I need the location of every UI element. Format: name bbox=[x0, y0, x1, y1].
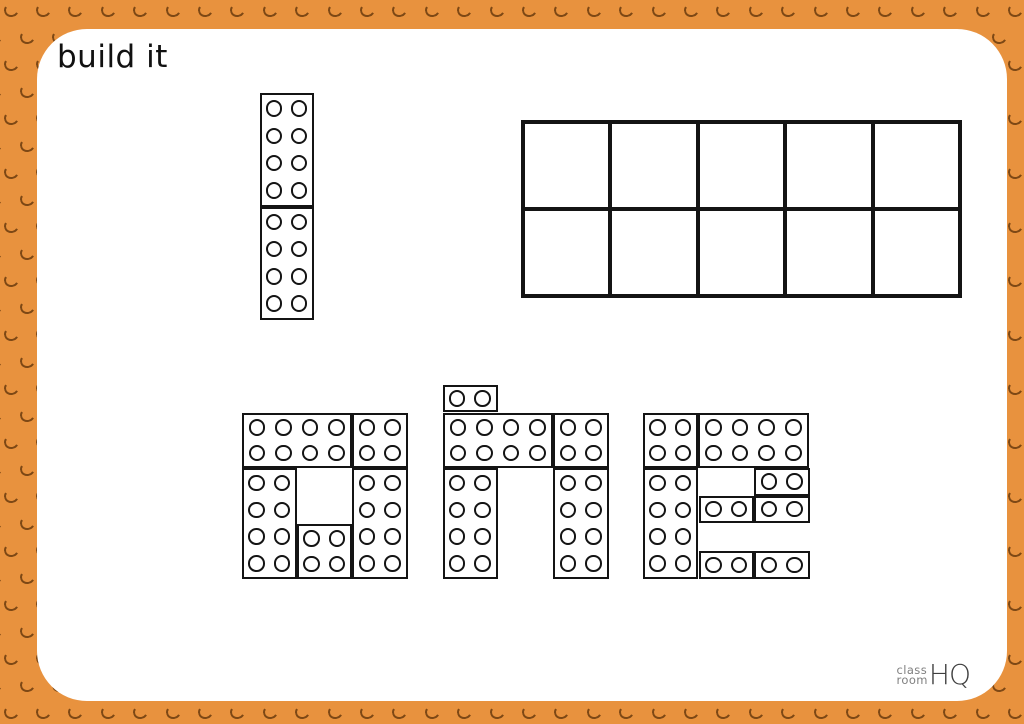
brick-stud-icon bbox=[675, 419, 692, 436]
baseplate-stud-icon bbox=[974, 1, 992, 18]
brick-stud-icon bbox=[302, 445, 319, 462]
lego-brick bbox=[242, 413, 353, 468]
brick-stud-icon bbox=[303, 530, 320, 547]
baseplate-stud-icon bbox=[164, 1, 182, 18]
lego-brick bbox=[260, 93, 315, 207]
baseplate-stud-icon bbox=[942, 1, 960, 18]
baseplate-stud-icon bbox=[358, 1, 376, 18]
brick-stud-icon bbox=[560, 475, 577, 492]
brick-stud-icon bbox=[275, 445, 292, 462]
baseplate-stud-icon bbox=[0, 82, 4, 99]
brick-stud-icon bbox=[359, 502, 376, 519]
brick-stud-icon bbox=[705, 501, 722, 518]
brick-stud-icon bbox=[248, 528, 265, 545]
baseplate-stud-icon bbox=[2, 163, 20, 180]
brick-stud-icon bbox=[359, 445, 376, 462]
brick-stud-icon bbox=[474, 555, 491, 572]
lego-brick bbox=[443, 468, 498, 579]
brick-stud-icon bbox=[450, 445, 467, 462]
lego-brick bbox=[443, 385, 498, 413]
ten-frame-cell bbox=[873, 209, 960, 296]
brick-stud-icon bbox=[560, 502, 577, 519]
baseplate-stud-icon bbox=[909, 703, 927, 720]
brick-stud-icon bbox=[649, 502, 666, 519]
brick-stud-icon bbox=[359, 555, 376, 572]
baseplate-stud-icon bbox=[18, 676, 36, 693]
baseplate-stud-icon bbox=[261, 1, 279, 18]
baseplate-stud-icon bbox=[1006, 379, 1024, 396]
baseplate-stud-icon bbox=[0, 514, 4, 531]
brick-stud-icon bbox=[705, 557, 722, 574]
lego-brick bbox=[698, 413, 809, 468]
baseplate-stud-icon bbox=[67, 703, 85, 720]
baseplate-stud-icon bbox=[0, 460, 4, 477]
brick-stud-icon bbox=[329, 556, 346, 573]
baseplate-stud-icon bbox=[520, 703, 538, 720]
logo-hq-mark: HQ bbox=[929, 661, 970, 689]
logo-word-bottom: room bbox=[897, 675, 928, 685]
brick-stud-icon bbox=[449, 528, 466, 545]
baseplate-stud-icon bbox=[1006, 433, 1024, 450]
baseplate-stud-icon bbox=[2, 649, 20, 666]
lego-brick bbox=[643, 413, 698, 468]
baseplate-stud-icon bbox=[1006, 325, 1024, 342]
baseplate-stud-icon bbox=[132, 703, 150, 720]
baseplate-stud-icon bbox=[358, 703, 376, 720]
brick-stud-icon bbox=[560, 528, 577, 545]
logo-wordmark: class room bbox=[897, 665, 928, 685]
brick-stud-icon bbox=[503, 445, 520, 462]
brick-stud-icon bbox=[761, 557, 778, 574]
baseplate-stud-icon bbox=[942, 703, 960, 720]
baseplate-stud-icon bbox=[844, 703, 862, 720]
baseplate-stud-icon bbox=[2, 541, 20, 558]
baseplate-stud-icon bbox=[877, 703, 895, 720]
brick-stud-icon bbox=[649, 555, 666, 572]
brick-stud-icon bbox=[731, 557, 748, 574]
baseplate-stud-icon bbox=[1006, 649, 1024, 666]
classroomhq-logo: class room HQ bbox=[897, 661, 970, 689]
ten-frame-cell bbox=[785, 122, 872, 209]
brick-stud-icon bbox=[758, 445, 775, 462]
baseplate-stud-icon bbox=[2, 379, 20, 396]
baseplate-stud-icon bbox=[1006, 1, 1024, 18]
baseplate-stud-icon bbox=[1006, 109, 1024, 126]
baseplate-stud-icon bbox=[618, 1, 636, 18]
brick-stud-icon bbox=[249, 419, 266, 436]
baseplate-stud-icon bbox=[0, 406, 4, 423]
brick-stud-icon bbox=[248, 555, 265, 572]
baseplate-stud-icon bbox=[2, 487, 20, 504]
baseplate-stud-icon bbox=[18, 244, 36, 261]
brick-stud-icon bbox=[274, 502, 291, 519]
brick-stud-icon bbox=[585, 419, 602, 436]
brick-stud-icon bbox=[249, 445, 266, 462]
brick-stud-icon bbox=[476, 445, 493, 462]
lego-brick bbox=[754, 496, 810, 524]
baseplate-stud-icon bbox=[812, 1, 830, 18]
baseplate-stud-icon bbox=[0, 244, 4, 261]
baseplate-stud-icon bbox=[553, 703, 571, 720]
brick-stud-icon bbox=[266, 155, 283, 172]
baseplate-stud-icon bbox=[650, 703, 668, 720]
baseplate-stud-icon bbox=[488, 1, 506, 18]
brick-stud-icon bbox=[785, 445, 802, 462]
brick-stud-icon bbox=[302, 419, 319, 436]
brick-stud-icon bbox=[585, 445, 602, 462]
baseplate-stud-icon bbox=[423, 1, 441, 18]
brick-stud-icon bbox=[291, 241, 308, 258]
brick-stud-icon bbox=[359, 419, 376, 436]
baseplate-stud-icon bbox=[0, 190, 4, 207]
baseplate-stud-icon bbox=[99, 703, 117, 720]
brick-stud-icon bbox=[384, 475, 401, 492]
brick-stud-icon bbox=[476, 419, 493, 436]
brick-stud-icon bbox=[384, 502, 401, 519]
lego-brick bbox=[352, 468, 408, 579]
brick-stud-icon bbox=[274, 555, 291, 572]
lego-brick bbox=[242, 468, 298, 579]
baseplate-stud-icon bbox=[99, 1, 117, 18]
brick-stud-icon bbox=[248, 475, 265, 492]
brick-stud-icon bbox=[560, 419, 577, 436]
baseplate-stud-icon bbox=[2, 55, 20, 72]
baseplate-stud-icon bbox=[18, 136, 36, 153]
baseplate-stud-icon bbox=[164, 703, 182, 720]
baseplate-stud-icon bbox=[391, 1, 409, 18]
baseplate-stud-icon bbox=[18, 460, 36, 477]
brick-stud-icon bbox=[266, 268, 283, 285]
baseplate-stud-icon bbox=[18, 514, 36, 531]
lego-brick bbox=[553, 413, 609, 468]
baseplate-stud-icon bbox=[1006, 487, 1024, 504]
baseplate-stud-icon bbox=[456, 1, 474, 18]
brick-stud-icon bbox=[585, 528, 602, 545]
brick-stud-icon bbox=[450, 419, 467, 436]
brick-stud-icon bbox=[503, 419, 520, 436]
baseplate-stud-icon bbox=[261, 703, 279, 720]
brick-stud-icon bbox=[649, 475, 666, 492]
brick-stud-icon bbox=[560, 555, 577, 572]
baseplate-stud-icon bbox=[34, 1, 52, 18]
brick-stud-icon bbox=[474, 528, 491, 545]
baseplate-stud-icon bbox=[682, 703, 700, 720]
brick-stud-icon bbox=[649, 419, 666, 436]
brick-stud-icon bbox=[384, 419, 401, 436]
brick-stud-icon bbox=[384, 555, 401, 572]
brick-stud-icon bbox=[529, 445, 546, 462]
brick-stud-icon bbox=[328, 445, 345, 462]
baseplate-stud-icon bbox=[488, 703, 506, 720]
baseplate-stud-icon bbox=[326, 703, 344, 720]
brick-stud-icon bbox=[266, 214, 283, 231]
baseplate-stud-icon bbox=[618, 703, 636, 720]
brick-stud-icon bbox=[785, 419, 802, 436]
baseplate-stud-icon bbox=[2, 217, 20, 234]
brick-stud-icon bbox=[705, 445, 722, 462]
ten-frame-cell bbox=[523, 122, 610, 209]
brick-stud-icon bbox=[359, 475, 376, 492]
ten-frame-cell bbox=[523, 209, 610, 296]
brick-stud-icon bbox=[786, 501, 803, 518]
baseplate-stud-icon bbox=[34, 703, 52, 720]
baseplate-stud-icon bbox=[974, 703, 992, 720]
brick-stud-icon bbox=[649, 528, 666, 545]
brick-stud-icon bbox=[266, 295, 283, 312]
baseplate-stud-icon bbox=[844, 1, 862, 18]
lego-brick bbox=[643, 468, 698, 579]
baseplate-stud-icon bbox=[1006, 163, 1024, 180]
brick-stud-icon bbox=[291, 182, 308, 199]
brick-stud-icon bbox=[474, 390, 491, 407]
baseplate-stud-icon bbox=[2, 325, 20, 342]
baseplate-stud-icon bbox=[18, 568, 36, 585]
baseplate-stud-icon bbox=[423, 703, 441, 720]
baseplate-stud-icon bbox=[650, 1, 668, 18]
ten-frame-cell bbox=[873, 122, 960, 209]
brick-stud-icon bbox=[761, 501, 778, 518]
baseplate-stud-icon bbox=[18, 622, 36, 639]
brick-stud-icon bbox=[274, 528, 291, 545]
brick-stud-icon bbox=[761, 473, 778, 490]
brick-stud-icon bbox=[675, 528, 692, 545]
baseplate-stud-icon bbox=[780, 1, 798, 18]
brick-stud-icon bbox=[449, 502, 466, 519]
brick-stud-icon bbox=[786, 557, 803, 574]
baseplate-stud-icon bbox=[812, 703, 830, 720]
brick-stud-icon bbox=[291, 155, 308, 172]
baseplate-stud-icon bbox=[456, 703, 474, 720]
baseplate-stud-icon bbox=[682, 1, 700, 18]
brick-stud-icon bbox=[474, 475, 491, 492]
brick-stud-icon bbox=[329, 530, 346, 547]
baseplate-stud-icon bbox=[18, 28, 36, 45]
baseplate-stud-icon bbox=[229, 1, 247, 18]
brick-stud-icon bbox=[291, 214, 308, 231]
baseplate-stud-icon bbox=[747, 1, 765, 18]
baseplate-stud-icon bbox=[747, 703, 765, 720]
baseplate-stud-icon bbox=[1006, 55, 1024, 72]
baseplate-stud-icon bbox=[1006, 595, 1024, 612]
brick-stud-icon bbox=[675, 445, 692, 462]
lego-brick bbox=[699, 496, 755, 524]
brick-stud-icon bbox=[266, 128, 283, 145]
brick-stud-icon bbox=[449, 555, 466, 572]
baseplate-stud-icon bbox=[715, 703, 733, 720]
baseplate-stud-icon bbox=[18, 352, 36, 369]
brick-stud-icon bbox=[585, 475, 602, 492]
baseplate-stud-icon bbox=[0, 136, 4, 153]
baseplate-stud-icon bbox=[18, 190, 36, 207]
baseplate-stud-icon bbox=[877, 1, 895, 18]
brick-stud-icon bbox=[274, 475, 291, 492]
baseplate-stud-icon bbox=[0, 298, 4, 315]
baseplate-stud-icon bbox=[2, 595, 20, 612]
baseplate-stud-icon bbox=[196, 703, 214, 720]
baseplate-stud-icon bbox=[585, 1, 603, 18]
baseplate-stud-icon bbox=[585, 703, 603, 720]
lego-brick bbox=[754, 468, 810, 496]
brick-stud-icon bbox=[384, 445, 401, 462]
baseplate-stud-icon bbox=[0, 352, 4, 369]
brick-stud-icon bbox=[732, 419, 749, 436]
baseplate-stud-icon bbox=[715, 1, 733, 18]
brick-stud-icon bbox=[786, 473, 803, 490]
brick-stud-icon bbox=[675, 502, 692, 519]
baseplate-stud-icon bbox=[1006, 271, 1024, 288]
brick-stud-icon bbox=[303, 556, 320, 573]
brick-stud-icon bbox=[675, 555, 692, 572]
brick-stud-icon bbox=[266, 182, 283, 199]
lego-brick bbox=[699, 551, 755, 579]
lego-brick bbox=[352, 413, 408, 468]
baseplate-stud-icon bbox=[294, 1, 312, 18]
baseplate-stud-icon bbox=[326, 1, 344, 18]
baseplate-stud-icon bbox=[520, 1, 538, 18]
baseplate-stud-icon bbox=[0, 622, 4, 639]
lego-brick bbox=[553, 468, 609, 579]
brick-stud-icon bbox=[359, 528, 376, 545]
brick-stud-icon bbox=[248, 502, 265, 519]
brick-stud-icon bbox=[585, 502, 602, 519]
ten-frame-cell bbox=[610, 122, 697, 209]
ten-frame bbox=[521, 120, 962, 298]
brick-stud-icon bbox=[675, 475, 692, 492]
baseplate-stud-icon bbox=[780, 703, 798, 720]
ten-frame-cell bbox=[610, 209, 697, 296]
brick-stud-icon bbox=[560, 445, 577, 462]
baseplate-stud-icon bbox=[2, 703, 20, 720]
brick-stud-icon bbox=[474, 502, 491, 519]
brick-stud-icon bbox=[731, 501, 748, 518]
worksheet-card: build it class room HQ bbox=[37, 29, 1007, 701]
ten-frame-cell bbox=[698, 122, 785, 209]
brick-stud-icon bbox=[291, 268, 308, 285]
lego-brick bbox=[443, 413, 554, 468]
baseplate-stud-icon bbox=[1006, 541, 1024, 558]
baseplate-stud-icon bbox=[132, 1, 150, 18]
brick-stud-icon bbox=[266, 100, 283, 117]
brick-stud-icon bbox=[384, 528, 401, 545]
brick-stud-icon bbox=[291, 295, 308, 312]
baseplate-stud-icon bbox=[391, 703, 409, 720]
brick-stud-icon bbox=[266, 241, 283, 258]
baseplate-stud-icon bbox=[909, 1, 927, 18]
worksheet-page: build it class room HQ bbox=[0, 0, 1024, 724]
baseplate-stud-icon bbox=[196, 1, 214, 18]
baseplate-stud-icon bbox=[294, 703, 312, 720]
brick-stud-icon bbox=[705, 419, 722, 436]
brick-stud-icon bbox=[291, 128, 308, 145]
baseplate-stud-icon bbox=[553, 1, 571, 18]
baseplate-stud-icon bbox=[1006, 217, 1024, 234]
brick-stud-icon bbox=[449, 390, 466, 407]
brick-stud-icon bbox=[758, 419, 775, 436]
brick-stud-icon bbox=[529, 419, 546, 436]
brick-stud-icon bbox=[275, 419, 292, 436]
baseplate-stud-icon bbox=[18, 82, 36, 99]
brick-stud-icon bbox=[585, 555, 602, 572]
brick-stud-icon bbox=[291, 100, 308, 117]
baseplate-stud-icon bbox=[2, 109, 20, 126]
baseplate-stud-icon bbox=[2, 433, 20, 450]
baseplate-stud-icon bbox=[18, 406, 36, 423]
baseplate-stud-icon bbox=[2, 1, 20, 18]
baseplate-stud-icon bbox=[0, 28, 4, 45]
baseplate-stud-icon bbox=[229, 703, 247, 720]
baseplate-stud-icon bbox=[18, 298, 36, 315]
lego-brick bbox=[260, 207, 315, 320]
brick-stud-icon bbox=[732, 445, 749, 462]
brick-stud-icon bbox=[649, 445, 666, 462]
brick-stud-icon bbox=[328, 419, 345, 436]
lego-brick bbox=[754, 551, 810, 579]
baseplate-stud-icon bbox=[0, 568, 4, 585]
page-title: build it bbox=[57, 39, 168, 75]
lego-brick bbox=[297, 524, 352, 579]
baseplate-stud-icon bbox=[67, 1, 85, 18]
baseplate-stud-icon bbox=[0, 676, 4, 693]
ten-frame-cell bbox=[698, 209, 785, 296]
baseplate-stud-icon bbox=[1006, 703, 1024, 720]
baseplate-stud-icon bbox=[2, 271, 20, 288]
brick-stud-icon bbox=[449, 475, 466, 492]
ten-frame-cell bbox=[785, 209, 872, 296]
